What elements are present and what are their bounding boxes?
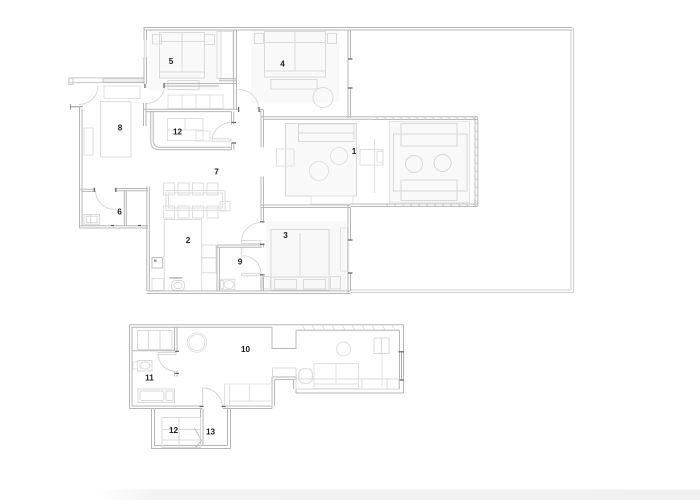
svg-text:13: 13: [206, 427, 216, 436]
svg-text:5: 5: [169, 57, 174, 66]
svg-text:8: 8: [118, 123, 123, 132]
svg-text:3: 3: [283, 231, 288, 240]
svg-text:11: 11: [145, 373, 154, 382]
svg-text:12: 12: [173, 127, 183, 136]
svg-text:10: 10: [241, 345, 251, 354]
svg-text:1: 1: [352, 147, 357, 156]
svg-text:4: 4: [280, 59, 285, 68]
svg-text:12: 12: [169, 426, 179, 435]
svg-text:9: 9: [238, 257, 243, 266]
svg-text:2: 2: [186, 236, 191, 245]
svg-text:7: 7: [214, 168, 219, 177]
svg-text:6: 6: [117, 207, 122, 216]
